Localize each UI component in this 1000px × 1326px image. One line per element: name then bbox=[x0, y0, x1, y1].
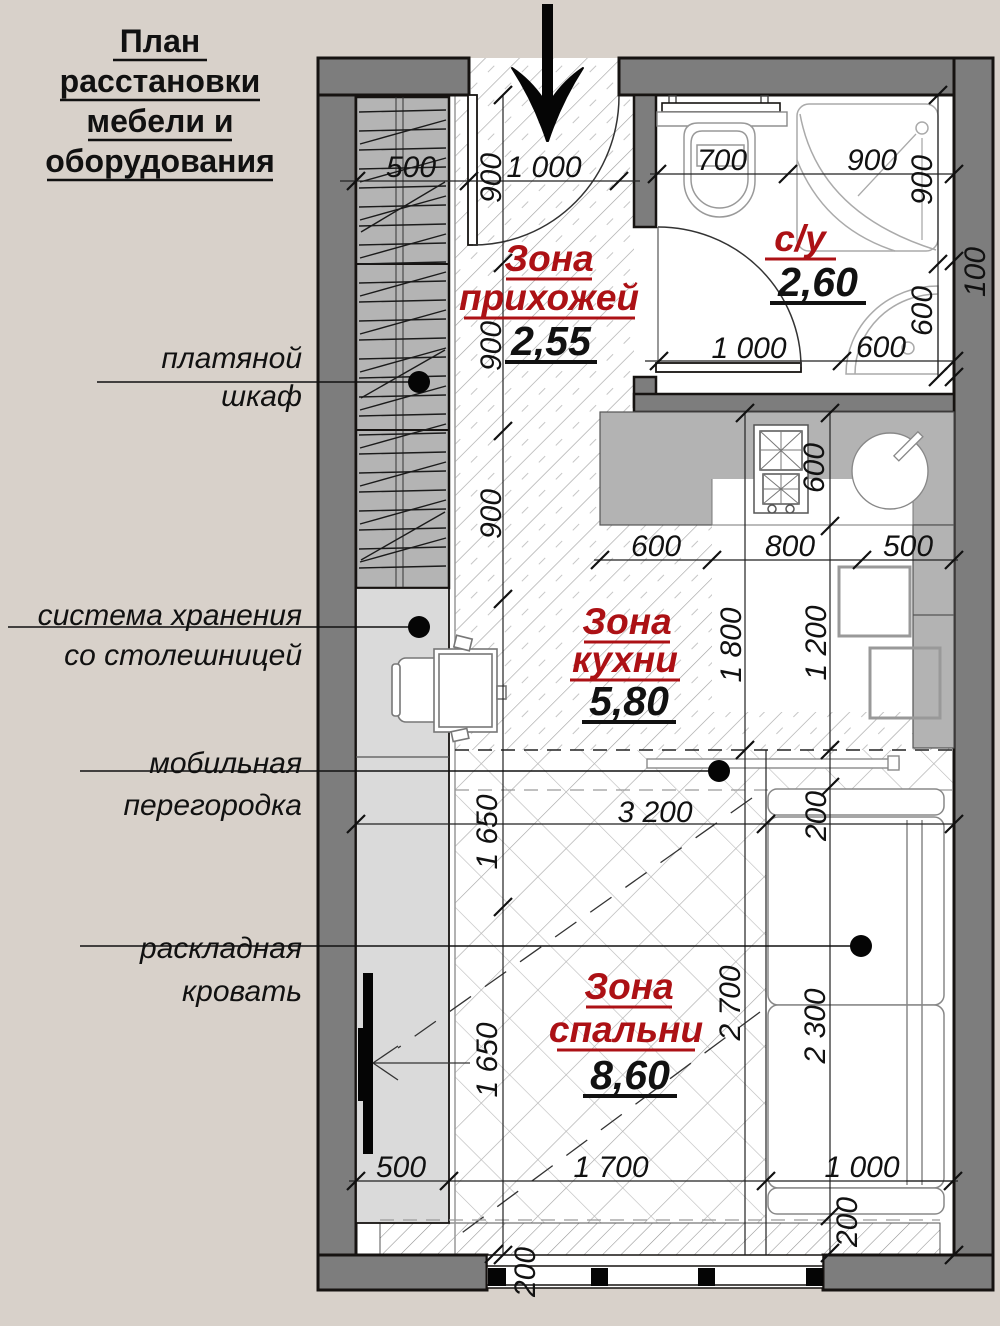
svg-text:шкаф: шкаф bbox=[221, 380, 302, 413]
svg-text:мебели и: мебели и bbox=[86, 103, 233, 139]
svg-text:1 000: 1 000 bbox=[506, 151, 581, 184]
svg-text:1 000: 1 000 bbox=[711, 332, 786, 365]
svg-text:1 000: 1 000 bbox=[824, 1151, 899, 1184]
svg-text:900: 900 bbox=[475, 489, 508, 539]
svg-text:700: 700 bbox=[697, 144, 747, 177]
svg-text:прихожей: прихожей bbox=[459, 277, 639, 318]
svg-text:500: 500 bbox=[376, 1151, 426, 1184]
svg-text:платяной: платяной bbox=[161, 342, 302, 375]
svg-text:Зона: Зона bbox=[582, 601, 671, 642]
svg-text:8,60: 8,60 bbox=[590, 1052, 670, 1098]
svg-text:200: 200 bbox=[509, 1247, 542, 1298]
svg-text:900: 900 bbox=[906, 155, 939, 205]
svg-text:200: 200 bbox=[831, 1197, 864, 1248]
svg-text:2,55: 2,55 bbox=[510, 318, 592, 364]
svg-text:900: 900 bbox=[475, 153, 508, 203]
svg-text:перегородка: перегородка bbox=[123, 789, 302, 822]
svg-text:1 650: 1 650 bbox=[471, 1022, 504, 1097]
svg-text:мобильная: мобильная bbox=[149, 747, 302, 780]
svg-text:со столешницей: со столешницей bbox=[64, 639, 302, 672]
svg-text:5,80: 5,80 bbox=[589, 678, 669, 724]
svg-text:кровать: кровать bbox=[182, 975, 302, 1008]
svg-text:500: 500 bbox=[386, 151, 436, 184]
svg-text:1 800: 1 800 bbox=[715, 607, 748, 682]
svg-text:2 300: 2 300 bbox=[799, 988, 832, 1064]
svg-text:600: 600 bbox=[798, 443, 831, 493]
svg-text:200: 200 bbox=[800, 791, 833, 842]
svg-text:3 200: 3 200 bbox=[617, 796, 692, 829]
svg-text:100: 100 bbox=[959, 247, 992, 297]
svg-text:500: 500 bbox=[883, 530, 933, 563]
svg-text:Зона: Зона bbox=[584, 966, 673, 1007]
svg-text:раскладная: раскладная bbox=[139, 932, 302, 965]
svg-text:1 200: 1 200 bbox=[800, 605, 833, 680]
svg-text:2,60: 2,60 bbox=[777, 259, 858, 305]
svg-text:с/у: с/у bbox=[774, 218, 828, 259]
svg-text:кухни: кухни bbox=[572, 639, 678, 680]
svg-text:оборудования: оборудования bbox=[45, 143, 275, 179]
svg-text:2 700: 2 700 bbox=[714, 965, 747, 1041]
svg-text:1 700: 1 700 bbox=[573, 1151, 648, 1184]
svg-text:спальни: спальни bbox=[549, 1009, 703, 1050]
svg-text:1 650: 1 650 bbox=[471, 794, 504, 869]
svg-text:600: 600 bbox=[906, 286, 939, 336]
svg-text:600: 600 bbox=[631, 530, 681, 563]
svg-text:600: 600 bbox=[856, 331, 906, 364]
svg-text:Зона: Зона bbox=[504, 238, 593, 279]
svg-text:система хранения: система хранения bbox=[38, 599, 302, 632]
svg-text:800: 800 bbox=[765, 530, 815, 563]
svg-text:900: 900 bbox=[475, 321, 508, 371]
svg-text:План: План bbox=[120, 23, 200, 59]
svg-text:900: 900 bbox=[847, 144, 897, 177]
svg-text:расстановки: расстановки bbox=[60, 63, 261, 99]
